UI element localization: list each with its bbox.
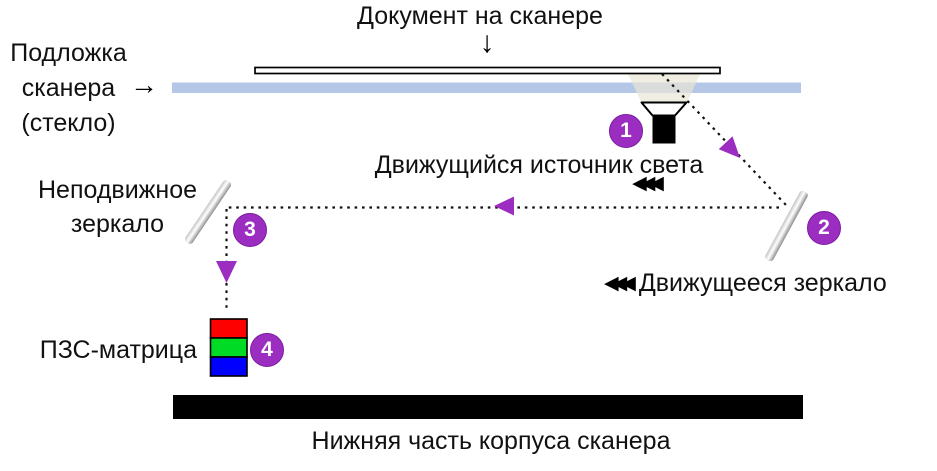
glass-label: Подложка сканера (стекло) [0, 36, 137, 141]
right-arrow-icon: → [127, 69, 161, 101]
light-beam-cone [628, 74, 700, 103]
fixed-mirror-label-line1: Неподвижное [25, 173, 210, 207]
glass-label-line3: (стекло) [0, 106, 137, 141]
scanner-case-bar [173, 395, 803, 419]
beam-arrowhead-down [216, 261, 237, 283]
mirror-motion-arrows-icon: ◀◀◀ [604, 272, 630, 294]
step-marker-2: 2 [807, 211, 841, 245]
fixed-mirror-label-line2: зеркало [25, 207, 210, 241]
flatbed-scanner-diagram: Документ на сканере ↓ Подложка сканера (… [0, 0, 937, 471]
step-marker-1: 1 [609, 114, 643, 148]
moving-mirror-label-row: ◀◀◀ Движущееся зеркало [604, 268, 887, 298]
glass-label-line1: Подложка [0, 36, 137, 71]
scanner-glass [172, 83, 801, 94]
beam-arrowhead-left [494, 197, 514, 216]
moving-mirror-label: Движущееся зеркало [639, 268, 887, 298]
lamp-body [653, 116, 676, 144]
glass-label-line2: сканера [0, 71, 137, 106]
moving-mirror [764, 190, 809, 263]
document-sheet [255, 68, 720, 74]
ccd-cell-red [211, 319, 248, 338]
ccd-cell-blue [211, 357, 248, 376]
step-marker-4: 4 [250, 333, 284, 367]
step-marker-3: 3 [233, 213, 267, 247]
ccd-label: ПЗС-матрица [0, 335, 197, 365]
scanner-case-label: Нижняя часть корпуса сканера [291, 426, 691, 456]
lamp-reflector [642, 103, 687, 116]
ccd-cell-green [211, 338, 248, 357]
down-arrow-icon: ↓ [472, 26, 502, 60]
light-motion-arrows-icon: ◀◀◀ [617, 172, 673, 194]
fixed-mirror-label: Неподвижное зеркало [25, 173, 210, 241]
